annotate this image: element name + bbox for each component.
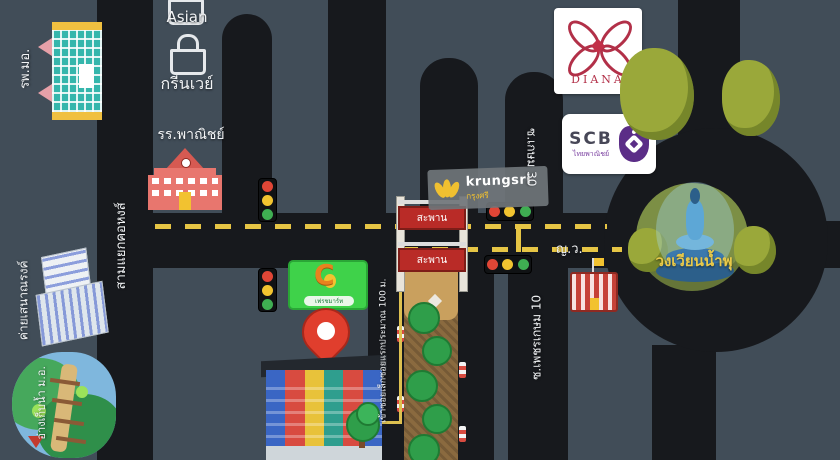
enter-soi-note: เข้าซอยเล็กซอยแรกประมาณ 100 ม. xyxy=(379,251,388,451)
fountain-top xyxy=(690,188,700,204)
green-lamp xyxy=(262,299,273,310)
route-dash-line-upper xyxy=(155,224,607,229)
median-curb-mark xyxy=(459,426,466,442)
fountain-monument xyxy=(648,182,742,288)
hospital-label: รพ.มอ. xyxy=(19,0,33,169)
median-tree xyxy=(422,336,452,366)
small-tree xyxy=(344,402,380,450)
greenway-market-label: กรีนเวย์ xyxy=(140,76,234,93)
flag-icon xyxy=(594,258,604,266)
hospital-building xyxy=(52,22,102,120)
yellow-lamp xyxy=(504,206,515,217)
median-tree xyxy=(408,434,440,460)
median-tree xyxy=(408,302,440,334)
footbridge: สะพาน สะพาน xyxy=(396,196,468,292)
krungsri-lotus-icon xyxy=(434,177,461,202)
median-curb-mark xyxy=(459,362,466,378)
pin-hole xyxy=(317,322,335,340)
yellow-lamp xyxy=(502,259,513,270)
fountain-roundabout-label: วงเวียนน้ำพุ xyxy=(632,254,756,270)
school-clock-icon xyxy=(181,158,191,168)
asian-market-label: Asian xyxy=(152,10,222,26)
route-dash-connector xyxy=(516,226,521,252)
cp-sub-text: เฟรชมาร์ท xyxy=(315,296,343,306)
school-building xyxy=(148,148,222,210)
footbridge-sign-lower-text: สะพาน xyxy=(417,253,448,268)
red-lamp xyxy=(262,181,273,192)
hospital-gable-icon xyxy=(38,38,52,56)
school-windows xyxy=(152,178,218,184)
hospital-gable-icon xyxy=(38,84,52,102)
reservoir-scene xyxy=(12,352,116,458)
roundabout-tree xyxy=(620,48,694,140)
krungsri-wordmark: krungsri xyxy=(466,172,532,189)
route-line-soi xyxy=(399,272,402,424)
shopping-bag-icon xyxy=(170,34,206,75)
footbridge-sign-upper-text: สะพาน xyxy=(417,211,448,226)
scb-thai-text: ไทยพาณิชย์ xyxy=(569,149,613,160)
red-lamp xyxy=(487,259,498,270)
yorwor-school-building xyxy=(570,260,618,314)
soi10-road-label: ซ.เพชรเกษม 10 xyxy=(531,237,544,437)
bag-body xyxy=(170,49,206,75)
green-lamp xyxy=(262,209,273,220)
soi30-road-label: ซ.เกษม 30 xyxy=(525,57,538,257)
yorwor-door xyxy=(590,298,599,310)
hand-drawn-city-map: สะพาน สะพาน รพ.มอ. Asian กรีนเวย์ xyxy=(0,0,840,460)
green-lamp xyxy=(518,259,529,270)
reservoir-label: อ่างเก็บน้ำ ม.อ. xyxy=(36,303,48,460)
yellow-lamp xyxy=(262,285,273,296)
bush xyxy=(76,386,88,398)
cp-sub-band: เฟรชมาร์ท xyxy=(304,296,354,306)
roundabout-tree xyxy=(722,60,780,136)
krungsri-thai-text: กรุงศรี xyxy=(466,187,532,202)
hospital-door xyxy=(79,64,94,88)
footbridge-rail xyxy=(398,242,466,246)
road-center-vertical xyxy=(328,0,386,214)
commerce-school-label: รร.พาณิชย์ xyxy=(144,128,238,143)
kho-hong-junction-label: สามแยกคอหงส์ xyxy=(115,146,129,346)
tree-crown xyxy=(356,402,380,426)
median-tree xyxy=(422,404,452,434)
cp-logo-letter: C xyxy=(314,260,335,289)
median-tree xyxy=(406,370,438,402)
traffic-light-icon xyxy=(258,178,277,222)
road-roundabout-south xyxy=(652,345,716,460)
yorwor-label: ญ.ว. xyxy=(556,243,606,257)
bag-handle xyxy=(177,34,199,49)
traffic-light-icon xyxy=(258,268,277,312)
scb-wordmark: SCB xyxy=(569,129,613,149)
school-door xyxy=(179,192,191,210)
footbridge-sign-lower: สะพาน xyxy=(398,248,466,272)
fountain-column xyxy=(686,200,704,240)
yellow-lamp xyxy=(262,195,273,206)
traffic-light-icon xyxy=(484,255,532,274)
red-lamp xyxy=(262,271,273,282)
cp-freshmart-sign: C เฟรชมาร์ท xyxy=(288,260,368,310)
